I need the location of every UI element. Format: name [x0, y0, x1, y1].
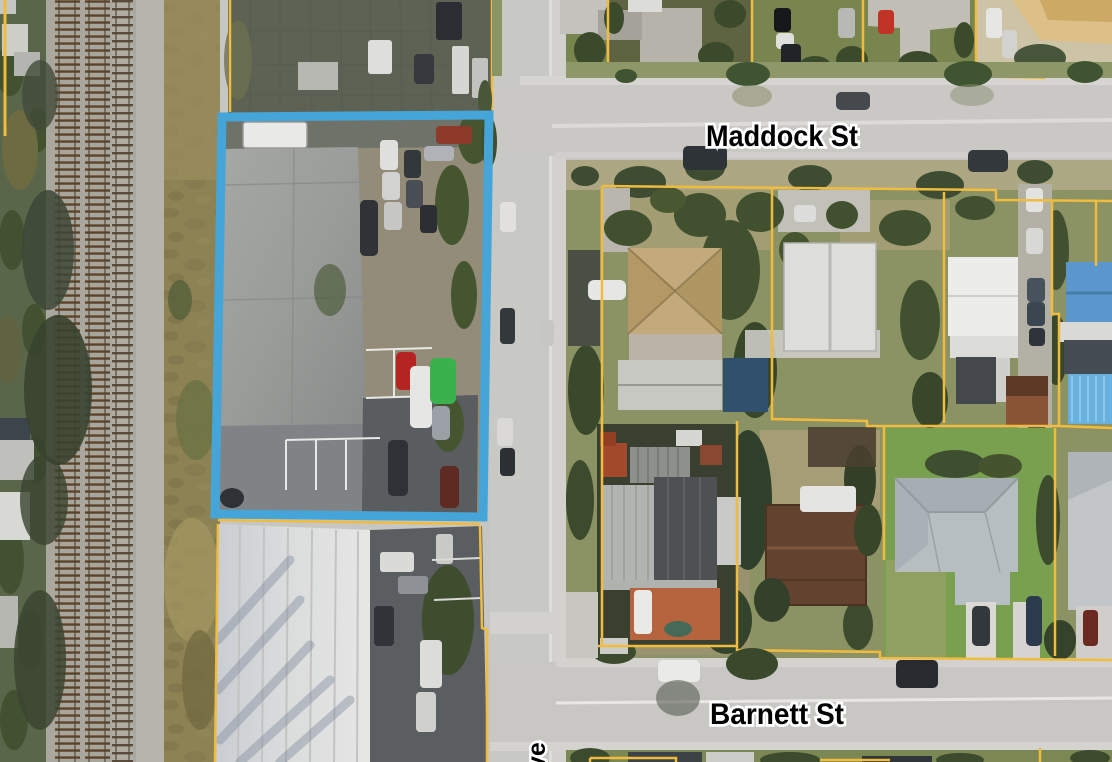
svg-text:Barnett St: Barnett St	[710, 698, 844, 731]
svg-text:ve: ve	[523, 742, 551, 762]
svg-text:Maddock St: Maddock St	[706, 120, 858, 153]
